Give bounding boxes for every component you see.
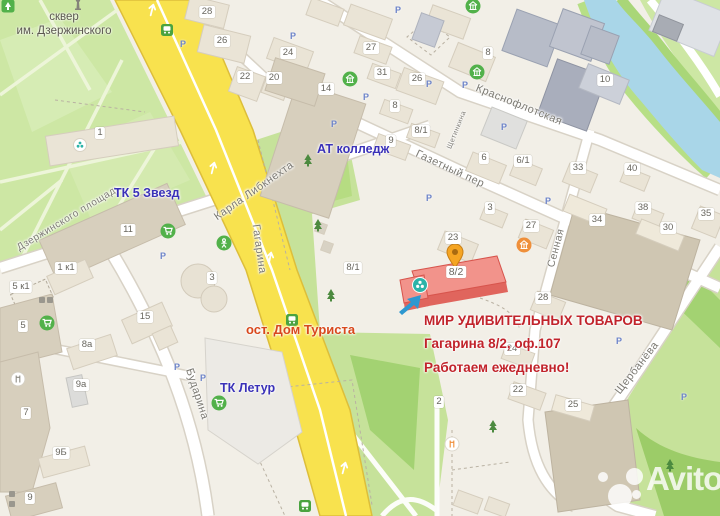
bank-icon[interactable] <box>517 238 532 253</box>
annotation-bus-stop: ост. Дом Туриста <box>246 322 355 337</box>
avito-logo-dot <box>598 472 608 482</box>
small-poi-icon <box>39 297 45 303</box>
annotation-tk5-zvezd: ТК 5 Звезд <box>114 186 180 200</box>
company-logo-marker-icon <box>413 278 428 293</box>
bus-stop-icon[interactable] <box>161 24 173 36</box>
annotation-tk-letur: ТК Летур <box>220 381 275 395</box>
avito-logo-dot <box>632 490 641 499</box>
annotation-at-college: АТ колледж <box>317 142 389 156</box>
map-canvas[interactable] <box>0 0 720 516</box>
annotation-shop-hours: Работаем ежедневно! <box>424 360 569 375</box>
playground-icon <box>217 236 232 251</box>
supermarket-icon[interactable] <box>40 316 55 331</box>
small-poi-icon <box>9 501 15 507</box>
college-icon[interactable] <box>343 72 358 87</box>
park-label-line1: сквер <box>6 10 122 24</box>
civic-building-icon[interactable] <box>470 65 485 80</box>
avito-logo-dot <box>626 468 643 485</box>
park-object-icon <box>74 139 87 152</box>
park-label: сквер им. Дзержинского <box>6 10 122 38</box>
avito-watermark-text: Avito <box>646 460 720 498</box>
map-screenshot: Дзержинского площадьКарла ЛибкнехтаГагар… <box>0 0 720 516</box>
bus-stop-icon[interactable] <box>299 500 311 512</box>
small-poi-icon <box>9 491 15 497</box>
cafe-icon[interactable] <box>11 372 25 386</box>
annotation-shop-address: Гагарина 8/2, оф.107 <box>424 336 561 351</box>
building-footprint <box>201 286 227 312</box>
cafe-icon[interactable] <box>445 437 459 451</box>
avito-logo-dot <box>608 484 632 508</box>
park-label-line2: им. Дзержинского <box>6 24 122 38</box>
annotation-shop-name: МИР УДИВИТЕЛЬНЫХ ТОВАРОВ <box>424 313 643 328</box>
supermarket-icon[interactable] <box>161 224 176 239</box>
small-poi-icon <box>47 297 53 303</box>
supermarket-icon[interactable] <box>212 396 227 411</box>
